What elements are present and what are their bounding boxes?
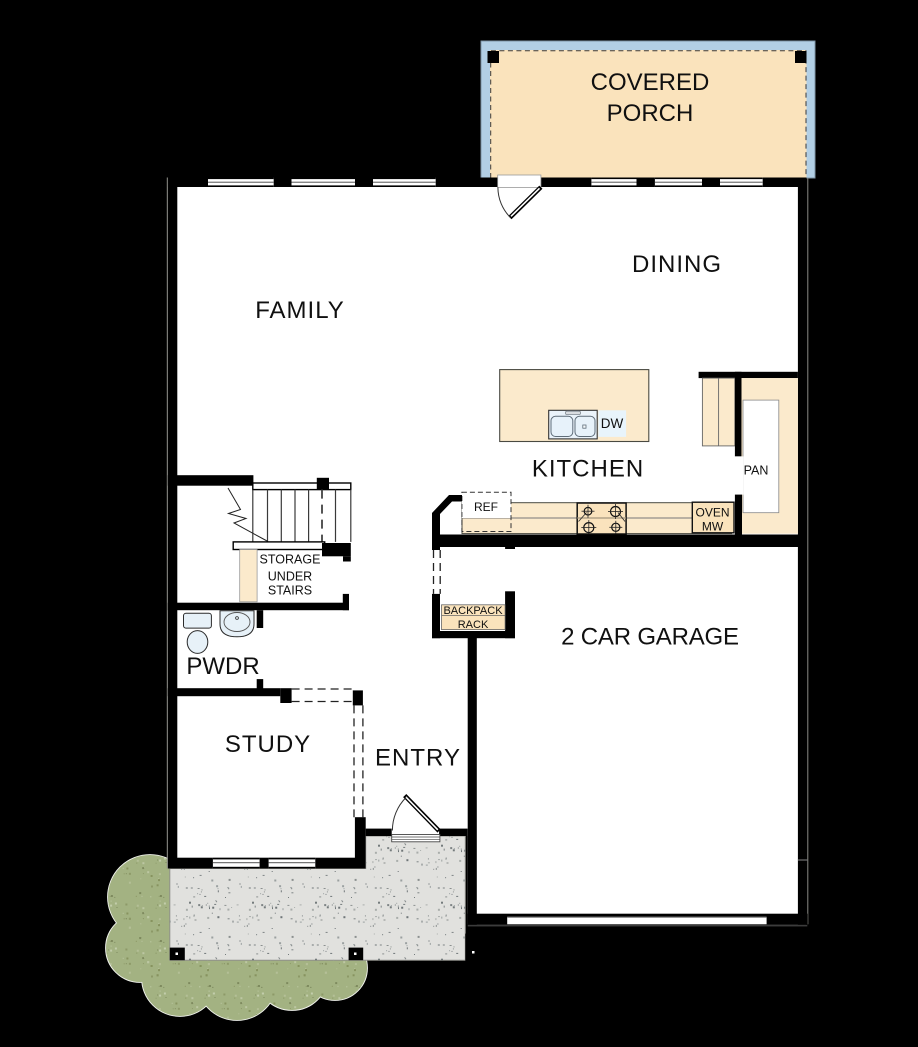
svg-text:PWDR: PWDR	[186, 653, 259, 680]
svg-text:DINING: DINING	[632, 251, 722, 278]
svg-text:RACK: RACK	[458, 619, 489, 631]
svg-text:COVERED: COVERED	[591, 69, 710, 96]
svg-text:BACKPACK: BACKPACK	[443, 605, 503, 617]
svg-text:STUDY: STUDY	[225, 731, 311, 758]
svg-text:OVEN: OVEN	[695, 506, 729, 520]
svg-text:STORAGE: STORAGE	[260, 553, 321, 567]
svg-text:2 CAR GARAGE: 2 CAR GARAGE	[561, 624, 739, 651]
svg-text:PAN: PAN	[744, 464, 769, 478]
svg-text:ENTRY: ENTRY	[375, 745, 461, 772]
svg-text:PORCH: PORCH	[607, 100, 694, 127]
svg-text:STAIRS: STAIRS	[268, 584, 312, 598]
svg-text:KITCHEN: KITCHEN	[532, 456, 644, 483]
svg-text:UNDER: UNDER	[268, 570, 312, 584]
svg-text:FAMILY: FAMILY	[255, 297, 345, 324]
svg-text:DW: DW	[601, 416, 624, 431]
svg-text:MW: MW	[702, 520, 724, 534]
svg-text:REF: REF	[474, 500, 498, 514]
